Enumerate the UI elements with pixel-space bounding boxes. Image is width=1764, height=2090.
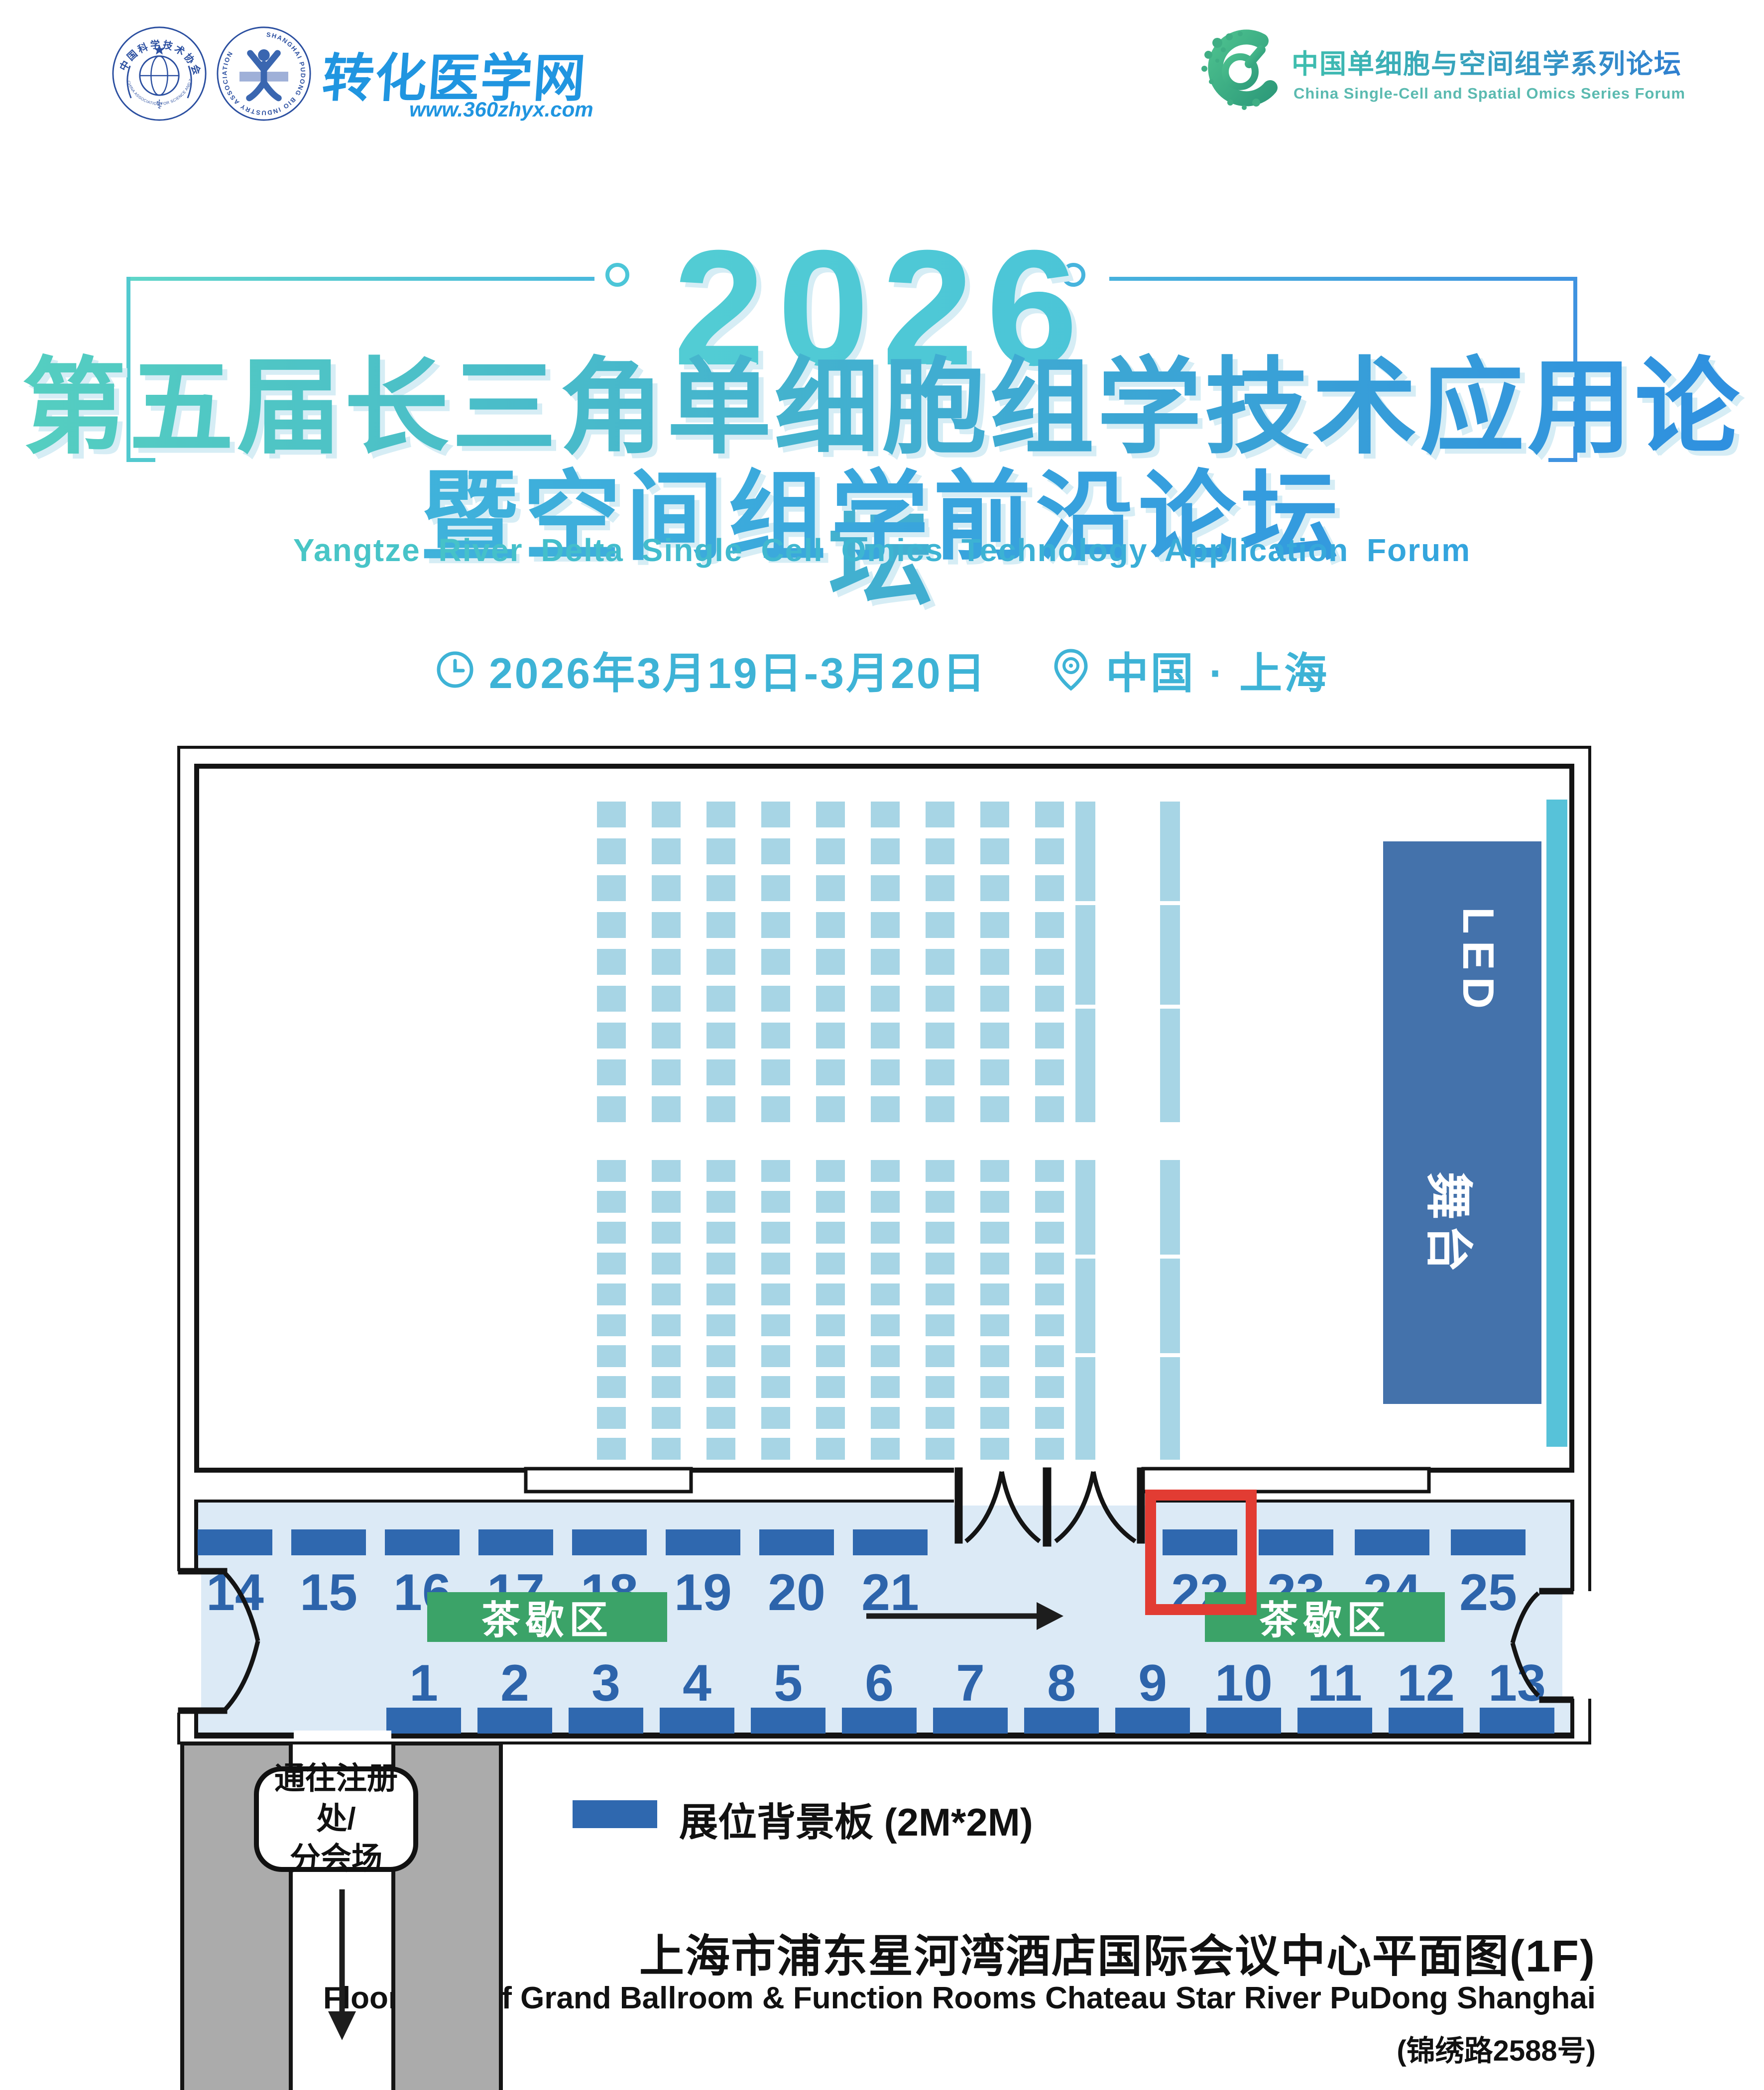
legend-booth-backboard-label: 展位背景板 (2M*2M)	[679, 1791, 1033, 1847]
highlighted-booth-22-box	[1145, 1490, 1257, 1615]
pudong-bio-logo-icon: SHANGHAI PUDONG BIO INDUSTRY ASSOCIATION	[215, 25, 313, 122]
cast-caduceus-icon: ⚕	[156, 98, 163, 112]
venue-address: (锦绣路2588号)	[1397, 2027, 1596, 2069]
corridor-arrow-down-icon	[328, 1889, 356, 2040]
corridor-label-line2: 分会场	[290, 1839, 382, 1879]
zhyx-url: www.360zhyx.com	[409, 98, 593, 121]
location-pin-icon	[1050, 647, 1092, 693]
ballroom	[194, 764, 1574, 1473]
corridor-label: 通往注册处/ 分会场	[254, 1766, 418, 1872]
series-forum-title-en: China Single-Cell and Spatial Omics Seri…	[1294, 85, 1685, 103]
stage-name-label: 舞台	[1418, 1172, 1488, 1277]
stage-area: LED 舞台	[1383, 841, 1541, 1404]
event-title-en: Yangtze River Delta Single Cell Omics Te…	[0, 532, 1764, 569]
led-screen-wall	[1546, 800, 1567, 1447]
venue-title-cn: 上海市浦东星河湾酒店国际会议中心平面图(1F)	[639, 1920, 1596, 1984]
cast-logo-icon: 中国科学技术协会 CHINA ASSOCIATION FOR SCIENCE A…	[111, 25, 208, 122]
series-forum-logo-icon	[1197, 28, 1285, 116]
stage-led-label: LED	[1453, 907, 1504, 1016]
legend-booth-backboard-swatch	[573, 1800, 657, 1828]
clock-icon	[435, 650, 475, 690]
date-location-row: 2026年3月19日-3月20日 中国 · 上海	[0, 638, 1764, 700]
corridor-label-line1: 通往注册处/	[259, 1759, 413, 1839]
event-poster: { "header": { "logo_cast": { "ring_cn": …	[0, 0, 1764, 2090]
series-forum-title-cn: 中国单细胞与空间组学系列论坛	[1292, 42, 1682, 81]
venue-title-en: Floor Plan of Grand Ballroom & Function …	[323, 1980, 1596, 2016]
tea-break-area-left: 茶歇区	[427, 1592, 667, 1642]
event-date: 2026年3月19日-3月20日	[489, 638, 987, 700]
event-location: 中国 · 上海	[1106, 638, 1329, 700]
